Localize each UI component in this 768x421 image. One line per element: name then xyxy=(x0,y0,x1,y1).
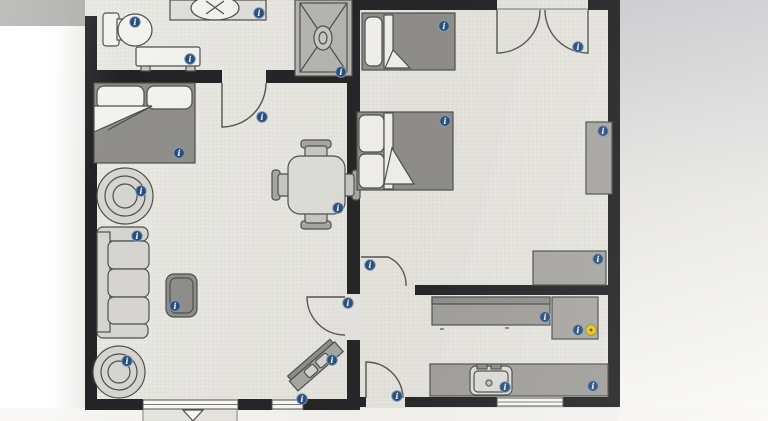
kitchen-counter[interactable]: i xyxy=(432,297,550,329)
toilet-shapes xyxy=(103,13,152,46)
shape xyxy=(359,115,384,152)
sideboard[interactable]: i xyxy=(533,251,606,285)
icon-glyph: i xyxy=(125,357,128,367)
icon-glyph: i xyxy=(133,18,136,28)
double-bed-right-shapes xyxy=(357,112,453,190)
living-room-door-info-icon[interactable]: i xyxy=(343,298,354,309)
sofa-shapes xyxy=(97,227,149,338)
bathroom-vanity-shapes xyxy=(170,0,266,20)
wardrobe-info-icon[interactable]: i xyxy=(598,126,609,137)
sofa-info-icon[interactable]: i xyxy=(132,231,143,242)
icon-glyph: i xyxy=(601,127,604,137)
sofa[interactable]: i xyxy=(97,227,149,338)
icon-glyph: i xyxy=(260,113,263,123)
dining-table-set-info-icon[interactable]: i xyxy=(333,203,344,214)
icon-glyph: i xyxy=(576,43,579,53)
refrigerator-info-icon[interactable]: i xyxy=(573,325,584,336)
double-bed-right[interactable]: i xyxy=(357,112,453,190)
shower-info-icon[interactable]: i xyxy=(336,67,347,78)
round-armchair-bottom-shapes xyxy=(93,346,145,398)
icon-glyph: i xyxy=(173,302,176,312)
double-door-right-leaf-info-icon[interactable]: i xyxy=(573,42,584,53)
right-outer-wall xyxy=(608,0,620,407)
floor-plan-canvas: i iiiii iiiiiiiiiiiiiiiii•ii xyxy=(0,0,768,421)
icon-glyph: i xyxy=(300,395,303,405)
shape xyxy=(108,297,149,324)
sideboard-info-icon[interactable]: i xyxy=(593,254,604,265)
kitchen-counter-info-icon[interactable]: i xyxy=(540,312,551,323)
coffee-table-info-icon[interactable]: i xyxy=(170,301,181,312)
refrigerator[interactable]: i• xyxy=(552,297,598,339)
refrigerator-warn-icon[interactable]: • xyxy=(586,325,597,336)
icon-glyph: i xyxy=(442,22,445,32)
shape xyxy=(108,269,149,297)
kitchen-counter-shapes xyxy=(432,297,550,329)
shape xyxy=(191,0,239,20)
shower-shapes xyxy=(295,0,352,76)
sink-counter-info-icon[interactable]: i xyxy=(500,382,511,393)
icon-glyph: i xyxy=(443,117,446,127)
icon-glyph: i xyxy=(330,356,333,366)
icon-glyph: i xyxy=(368,261,371,271)
shape xyxy=(147,86,192,109)
shape xyxy=(432,297,550,304)
shape xyxy=(477,364,487,369)
icon-glyph: i xyxy=(257,9,260,19)
round-armchair-top-info-icon[interactable]: i xyxy=(136,186,147,197)
living-room-window-info-icon[interactable]: i xyxy=(297,394,308,405)
single-bed[interactable]: i xyxy=(362,13,455,70)
icon-glyph: i xyxy=(591,382,594,392)
icon-glyph: i xyxy=(346,299,349,309)
balcony-opening[interactable] xyxy=(143,400,238,409)
sink-counter-info-icon[interactable]: i xyxy=(588,381,599,392)
bathroom-vanity-info-icon[interactable]: i xyxy=(254,8,265,19)
bathroom-wall-left xyxy=(97,70,222,83)
right-unit-top-wall-a xyxy=(360,0,497,10)
single-bed-info-icon[interactable]: i xyxy=(439,21,450,32)
round-armchair-bottom-info-icon[interactable]: i xyxy=(122,356,133,367)
icon-glyph: i xyxy=(188,55,191,65)
toilet[interactable]: i xyxy=(103,13,152,46)
icon-glyph: i xyxy=(177,149,180,159)
right-unit-bottom-wall-a xyxy=(356,397,366,407)
coffee-table-shapes xyxy=(166,274,197,317)
bedroom-door-info-icon[interactable]: i xyxy=(365,260,376,271)
icon-glyph: i xyxy=(135,232,138,242)
shape xyxy=(491,364,501,369)
shape xyxy=(486,380,492,386)
icon-glyph: • xyxy=(588,325,593,335)
entry-door-info-icon[interactable]: i xyxy=(392,391,403,402)
radiator-info-icon[interactable]: i xyxy=(185,54,196,65)
icon-glyph: i xyxy=(596,255,599,265)
tv-stand-info-icon[interactable]: i xyxy=(327,355,338,366)
floor-plan-photo: i iiiii iiiiiiiiiiiiiiiii•ii xyxy=(0,0,768,421)
right-unit-bottom-wall-c xyxy=(563,397,613,407)
round-armchair-bottom[interactable]: i xyxy=(93,346,145,398)
icon-glyph: i xyxy=(395,392,398,402)
double-bed-left[interactable]: i xyxy=(94,83,195,163)
kitchen-wall xyxy=(415,285,613,295)
sink-counter-shapes xyxy=(430,364,608,396)
shape xyxy=(314,26,332,50)
shape xyxy=(108,241,149,269)
shape xyxy=(365,17,382,66)
shape xyxy=(430,364,608,396)
round-armchair-top-shapes xyxy=(97,168,153,224)
left-unit-bottom-wall-b xyxy=(238,399,272,410)
icon-glyph: i xyxy=(336,204,339,214)
icon-glyph: i xyxy=(576,326,579,336)
double-bed-left-info-icon[interactable]: i xyxy=(174,148,185,159)
icon-glyph: i xyxy=(503,383,506,393)
round-armchair-top[interactable]: i xyxy=(97,168,153,224)
sink-counter[interactable]: ii xyxy=(430,364,608,396)
bathroom-vanity[interactable]: i xyxy=(170,0,266,20)
toilet-info-icon[interactable]: i xyxy=(130,17,141,28)
bathroom-door-info-icon[interactable]: i xyxy=(257,112,268,123)
icon-glyph: i xyxy=(543,313,546,323)
coffee-table[interactable]: i xyxy=(166,274,197,317)
icon-glyph: i xyxy=(139,187,142,197)
left-outer-wall xyxy=(85,16,97,410)
left-unit-bottom-wall-a xyxy=(85,399,143,410)
shape xyxy=(359,154,384,188)
shower[interactable]: i xyxy=(295,0,352,78)
right-unit-bottom-wall-b xyxy=(405,397,497,407)
wardrobe[interactable]: i xyxy=(586,122,612,194)
kitchen-window[interactable] xyxy=(497,398,563,406)
icon-glyph: i xyxy=(339,68,342,78)
double-bed-right-info-icon[interactable]: i xyxy=(440,116,451,127)
